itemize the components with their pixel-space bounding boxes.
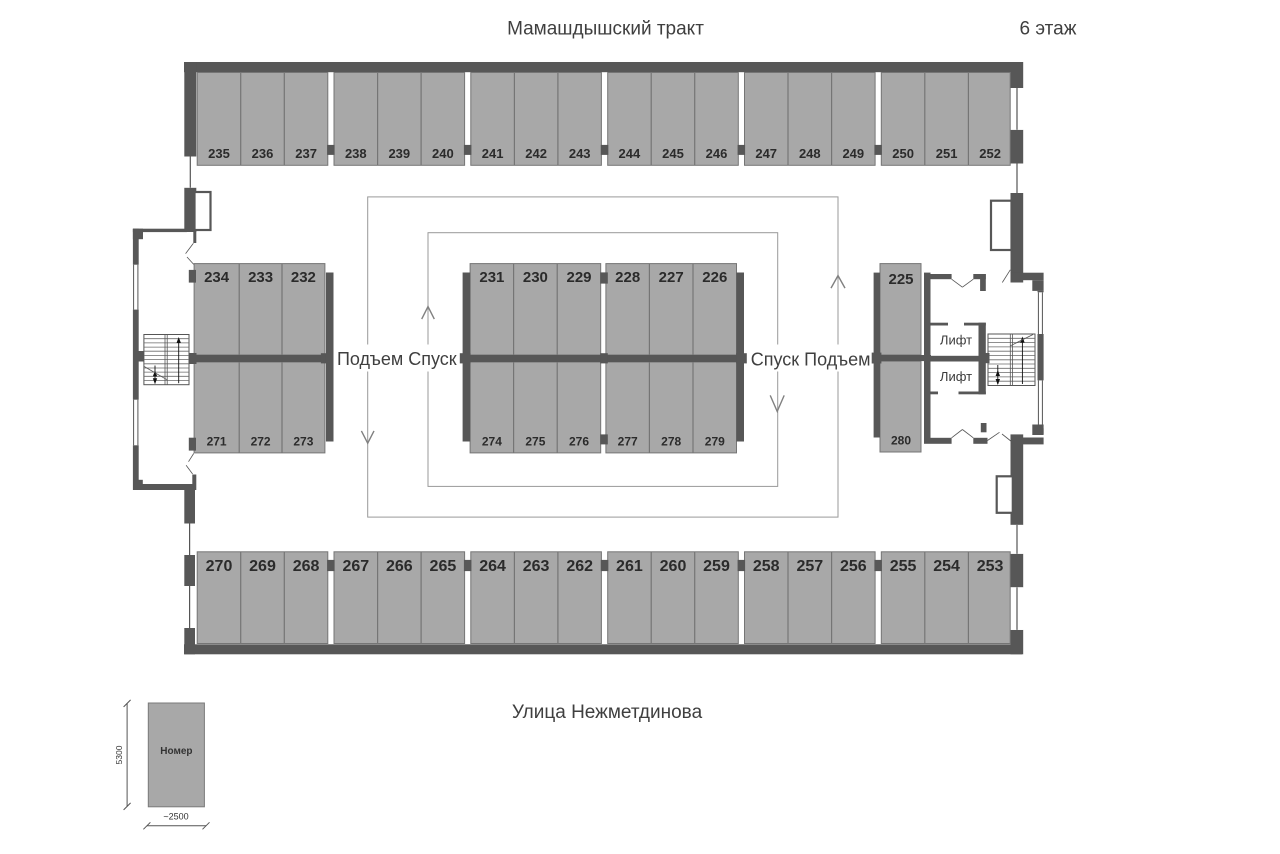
svg-text:253: 253: [977, 558, 1004, 575]
svg-text:280: 280: [891, 433, 911, 447]
svg-text:225: 225: [888, 271, 913, 288]
svg-text:Мамашдышский тракт: Мамашдышский тракт: [507, 18, 704, 39]
svg-text:244: 244: [619, 146, 641, 161]
svg-text:272: 272: [251, 435, 271, 449]
svg-text:236: 236: [252, 146, 274, 161]
svg-text:252: 252: [979, 146, 1001, 161]
svg-text:276: 276: [569, 435, 589, 449]
svg-text:274: 274: [482, 435, 502, 449]
svg-text:263: 263: [523, 558, 550, 575]
svg-text:268: 268: [293, 558, 320, 575]
svg-text:5300: 5300: [114, 745, 124, 764]
svg-text:249: 249: [842, 146, 864, 161]
svg-text:239: 239: [388, 146, 410, 161]
svg-text:228: 228: [615, 269, 640, 286]
svg-text:279: 279: [705, 435, 725, 449]
svg-text:~2500: ~2500: [163, 812, 188, 822]
svg-text:246: 246: [706, 146, 728, 161]
svg-text:260: 260: [660, 558, 687, 575]
svg-text:237: 237: [295, 146, 317, 161]
svg-text:255: 255: [890, 558, 917, 575]
svg-text:259: 259: [703, 558, 730, 575]
svg-text:Улица Нежметдинова: Улица Нежметдинова: [512, 702, 703, 723]
svg-text:226: 226: [702, 269, 727, 286]
svg-text:271: 271: [207, 435, 227, 449]
svg-text:227: 227: [659, 269, 684, 286]
svg-text:241: 241: [482, 146, 504, 161]
svg-text:254: 254: [933, 558, 960, 575]
svg-text:6 этаж: 6 этаж: [1020, 18, 1077, 39]
svg-text:238: 238: [345, 146, 367, 161]
svg-text:265: 265: [430, 558, 457, 575]
svg-text:256: 256: [840, 558, 867, 575]
svg-text:234: 234: [204, 269, 230, 286]
svg-text:257: 257: [796, 558, 823, 575]
svg-text:233: 233: [248, 269, 273, 286]
svg-text:230: 230: [523, 269, 548, 286]
svg-text:251: 251: [936, 146, 958, 161]
svg-text:269: 269: [249, 558, 276, 575]
svg-text:275: 275: [525, 435, 545, 449]
svg-text:267: 267: [342, 558, 369, 575]
svg-text:229: 229: [566, 269, 591, 286]
svg-text:Подъем Спуск: Подъем Спуск: [337, 349, 457, 369]
svg-text:264: 264: [479, 558, 506, 575]
svg-text:Лифт: Лифт: [940, 369, 972, 384]
svg-text:242: 242: [525, 146, 547, 161]
svg-text:266: 266: [386, 558, 413, 575]
svg-text:Лифт: Лифт: [940, 333, 972, 348]
svg-text:231: 231: [479, 269, 504, 286]
svg-text:247: 247: [755, 146, 777, 161]
svg-text:240: 240: [432, 146, 454, 161]
svg-text:270: 270: [206, 558, 233, 575]
svg-text:258: 258: [753, 558, 780, 575]
svg-text:250: 250: [892, 146, 914, 161]
svg-text:277: 277: [618, 435, 638, 449]
svg-text:245: 245: [662, 146, 684, 161]
svg-text:262: 262: [566, 558, 593, 575]
svg-text:278: 278: [661, 435, 681, 449]
svg-text:248: 248: [799, 146, 821, 161]
svg-text:243: 243: [569, 146, 591, 161]
svg-text:273: 273: [293, 435, 313, 449]
svg-text:Номер: Номер: [160, 746, 192, 757]
svg-text:232: 232: [291, 269, 316, 286]
svg-text:235: 235: [208, 146, 230, 161]
svg-text:261: 261: [616, 558, 643, 575]
svg-text:Спуск Подъем: Спуск Подъем: [751, 349, 871, 369]
